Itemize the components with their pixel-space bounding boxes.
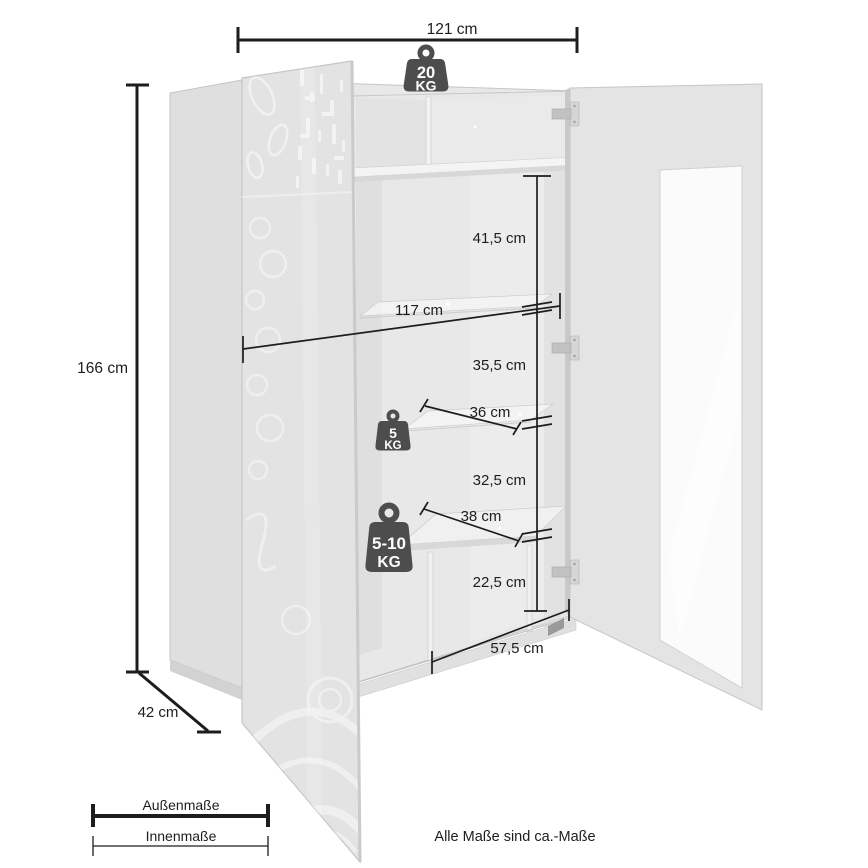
legend-outer-label: Außenmaße: [142, 797, 219, 813]
dim-wood-shelf-depth-label: 38 cm: [461, 508, 502, 525]
dimension-outer-height: 166 cm: [77, 85, 149, 672]
dim-bottom-section-label: 22,5 cm: [473, 574, 526, 591]
dim-glass-shelf-depth-label: 36 cm: [470, 404, 511, 421]
dim-mid-section-label: 35,5 cm: [473, 357, 526, 374]
right-glass-door: [552, 84, 762, 710]
dim-inner-width-label: 117 cm: [395, 302, 443, 319]
furniture-dimension-diagram: 121 cm 166 cm 42 cm 41,5 cm 35,5 cm 32,5…: [0, 0, 868, 868]
dim-outer-width-label: 121 cm: [427, 21, 478, 38]
weight-5kg-value: 5: [389, 425, 397, 441]
dim-bottom-inner-width-label: 57,5 cm: [490, 640, 543, 657]
weight-20kg-icon: 20 KG: [404, 47, 449, 94]
weight-5-10kg-value: 5-10: [372, 534, 406, 553]
top-compartments: [352, 91, 576, 182]
dim-outer-height-label: 166 cm: [77, 360, 128, 377]
dimension-outer-width: 121 cm: [238, 21, 577, 53]
legend-inner-label: Innenmaße: [146, 828, 217, 844]
cabinet-body: [170, 80, 576, 731]
cabinet-diagram-svg: 121 cm 166 cm 42 cm 41,5 cm 35,5 cm 32,5…: [0, 0, 868, 868]
legend-outer-dimensions: Außenmaße: [93, 797, 268, 827]
left-patterned-door: [240, 61, 364, 862]
weight-5kg-unit: KG: [384, 440, 401, 452]
dim-lower-section-label: 32,5 cm: [473, 472, 526, 489]
dim-top-section-label: 41,5 cm: [473, 230, 526, 247]
dim-outer-depth-label: 42 cm: [138, 704, 179, 721]
footnote-approx-dimensions: Alle Maße sind ca.-Maße: [434, 829, 595, 845]
weight-5-10kg-unit: KG: [377, 554, 400, 571]
weight-20kg-unit: KG: [416, 78, 437, 94]
legend-inner-dimensions: Innenmaße: [93, 828, 268, 856]
